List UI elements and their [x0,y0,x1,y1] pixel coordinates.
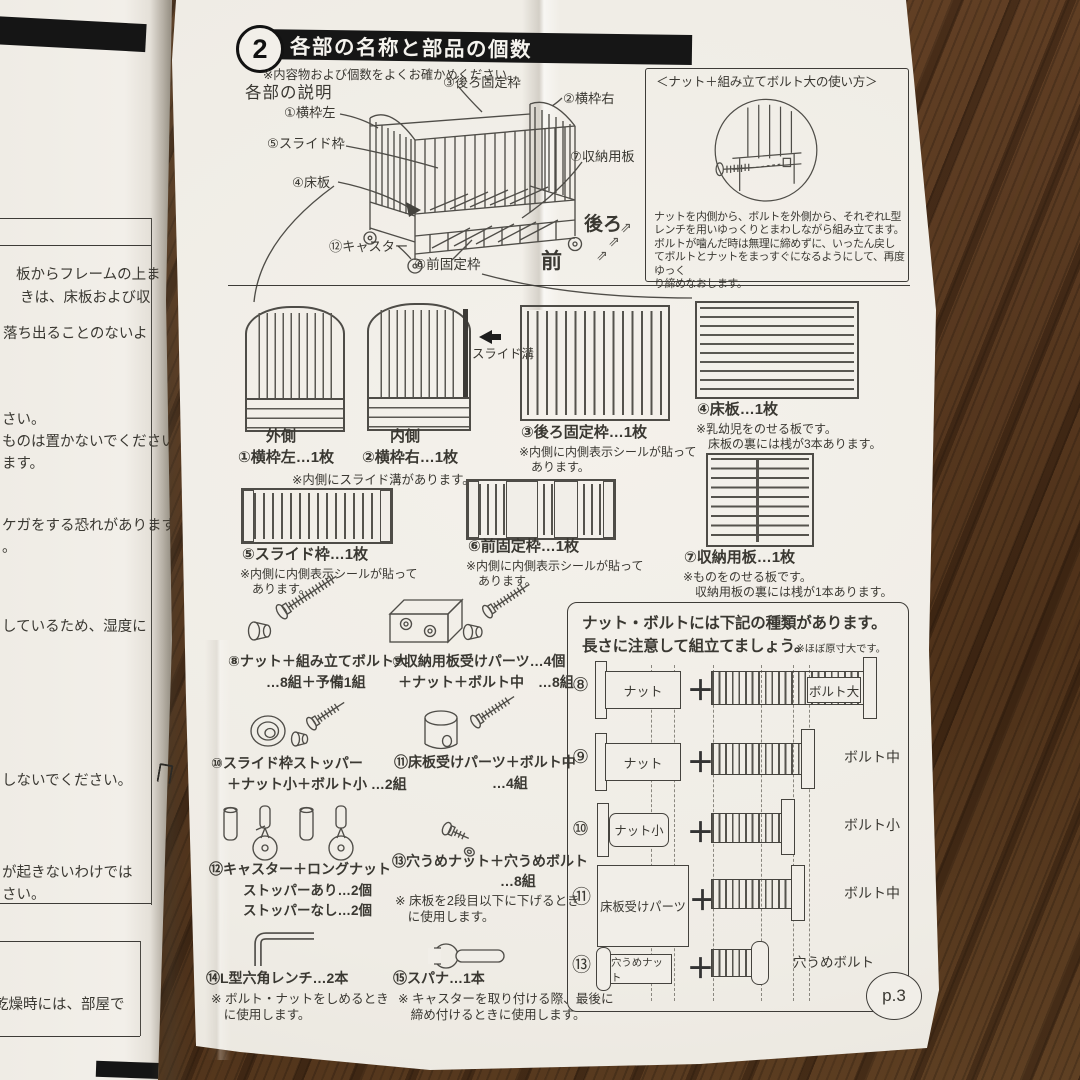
table-hole-cap-nut-drawing: 穴うめナット [610,954,672,984]
small-nut-icon [290,730,310,748]
hardware8-label: ⑧ナット＋組み立てボルト大 [228,653,408,669]
bolt-table-title1: ナット・ボルトには下記の種類があります。 [582,615,886,633]
crib-label-floor-board: ④床板 [292,175,330,190]
hardware11-label: ⑪床板受けパーツ＋ボルト中 [394,754,576,770]
plus-sign: ＋ [687,669,714,708]
bolt-medium-label: ボルト中 [844,885,900,901]
plus-sign: ＋ [687,741,714,780]
table-row13-number: ⑬ [572,955,591,977]
hole-cap-bolt-label: 穴うめボルト [793,955,874,971]
part7-label: ⑦収納用板…1枚 [684,549,795,566]
bolt-size-table: ナット・ボルトには下記の種類があります。 長さに注意して組立てましょう。 ※ほぼ… [567,602,909,1012]
slide-stopper-icon [247,712,289,750]
crib-label-caster: ⑫キャスター [329,239,408,254]
board-support-block-icon [386,594,472,648]
part1-side: 外側 [266,428,296,445]
nut-label: 穴うめナット [611,954,671,984]
part5-label: ⑤スライド枠…1枚 [242,546,368,563]
hardware10-sub: ＋ナット小＋ボルト小 …2組 [227,776,407,792]
staple [156,763,173,784]
bolt-usage-box: ＜ナット＋組み立てボルト大の使い方＞ ナットを内側から、ボルトを外側から、それぞ… [645,68,909,282]
hardware13-sub: …8組 [500,873,536,889]
page-number: p.3 [882,986,906,1006]
hardware13-note: ※ 床板を2段目以下に下げるとき に使用します。 [395,893,580,925]
hardware10-label: ⑩スライド枠ストッパー [211,755,363,771]
bolt-small-label: ボルト小 [844,817,900,833]
part-side-frame-right-drawing [367,303,471,431]
medium-bolt-icon [467,687,523,731]
nut-label: ナット [623,753,662,772]
direction-front-label: 前 [541,250,562,274]
bolt-label: ボルト大 [809,681,859,700]
bolt-usage-illustration [706,93,826,211]
part12-note: ※内側にスライド溝があります。 [292,473,475,487]
section-number: 2 [252,34,267,65]
plus-sign: ＋ [687,947,714,986]
part3-note: ※内側に内側表示シールが貼って あります。 [519,445,696,475]
part-slide-frame-drawing [241,488,393,544]
hardware14-note: ※ ボルト・ナットをしめるとき に使用します。 [211,991,389,1023]
bolt-large-label-box: ボルト大 [807,677,861,703]
part6-note: ※内側に内側表示シールが貼って あります。 [466,559,643,589]
part2-label: ②横枠右…1枚 [362,449,458,466]
bolt-medium-label: ボルト中 [844,749,900,765]
part-floor-board-drawing [695,301,859,399]
support-part-label: 床板受けパーツ [600,897,686,915]
section-title: 各部の名称と部品の個数 [290,29,532,62]
hardware12-sub1: ストッパーあり…2個 [243,883,372,899]
table-support-part-drawing: 床板受けパーツ [597,865,689,947]
crib-label-front-fixed-frame: ⑥前固定枠 [414,257,481,273]
bolt-usage-body: ナットを内側から、ボルトを外側から、それぞれL型 レンチを用いゆっくりとまわしな… [654,211,908,291]
direction-arrow-icon: ⇗ [596,247,608,264]
floor-board-arrowhead [406,202,421,217]
crib-label-side-frame-right: ②横枠右 [563,91,614,106]
main-page-content: 各部の名称と部品の個数 2 ※内容物および個数をよくお確かめください。 各部の説… [0,0,1080,1080]
hardware15-label: ⑮スパナ…1本 [393,970,485,986]
bolt-table-scale-note: ※ほぼ原寸大です。 [796,644,886,656]
hardware9-label: ⑨収納用板受けパーツ…4個 [392,653,565,669]
hardware8-sub: …8組＋予備1組 [266,674,366,690]
page-number-badge: p.3 [866,972,922,1020]
nut-icon [246,618,274,644]
photo-of-instruction-manual: 板からフレームの上ま きは、床板および収 落ち出ることのないよ さい。 ものは置… [0,0,1080,1080]
section-divider [228,285,910,286]
part4-note: ※乳幼児をのせる板です。 床板の裏には桟が3本あります。 [696,422,881,452]
part4-label: ④床板…1枚 [697,401,778,418]
hardware14-label: ⑭L型六角レンチ…2本 [206,970,348,986]
direction-arrow-icon: ⇗ [608,233,620,250]
table-row11-number: ⑪ [572,887,591,909]
crib-label-side-frame-left: ①横枠左 [284,105,335,120]
part7-note: ※ものをのせる板です。 収納用板の裏には桟が1本あります。 [683,570,892,600]
bolt-table-title2: 長さに注意して組立てましょう。 [582,638,809,656]
table-small-nut-drawing: ナット小 [609,813,669,847]
hex-key-icon [248,928,320,970]
part-back-fixed-frame-drawing [520,305,670,421]
caster-and-long-nut-icons [220,806,370,864]
plus-sign: ＋ [687,811,714,850]
hardware12-label: ⑫キャスター＋ロングナット [209,861,391,877]
small-bolt-icon [303,694,352,734]
part6-label: ⑥前固定枠…1枚 [468,538,579,555]
hardware13-label: ⑬穴うめナット＋穴うめボルト [392,853,588,869]
part-storage-board-drawing [706,453,814,547]
bolt-usage-title: ＜ナット＋組み立てボルト大の使い方＞ [656,75,877,89]
part-side-frame-left-drawing [245,306,345,432]
nut-label: ナット [623,681,662,700]
part1-label: ①横枠左…1枚 [238,449,334,466]
nut-label: ナット小 [614,821,663,839]
crib-label-back-fixed-frame: ③後ろ固定枠 [443,75,521,90]
hardware11-sub: …4組 [492,775,528,791]
table-row9-number: ⑨ [572,747,589,769]
hardware12-sub2: ストッパーなし…2個 [243,903,372,919]
table-row10-number: ⑩ [572,819,589,841]
hardware9-sub: ＋ナット＋ボルト中 …8組 [398,674,574,690]
crib-label-storage-board: ⑦収納用板 [570,149,635,164]
slide-groove-arrow-icon [472,330,501,344]
part-front-fixed-frame-drawing [466,479,616,540]
table-row8-number: ⑧ [572,675,589,697]
table-nut-drawing: ナット [605,671,681,709]
part2-side: 内側 [390,428,420,445]
table-nut-drawing: ナット [605,743,681,781]
slide-groove-strip [463,309,468,399]
nut-icon [462,622,484,642]
part3-label: ③後ろ固定枠…1枚 [521,424,647,441]
section-number-badge: 2 [236,25,284,73]
crib-label-slide-frame: ⑤スライド枠 [267,136,345,151]
direction-arrow-icon: ⇗ [620,219,632,236]
section-title-banner: 各部の名称と部品の個数 [254,29,692,65]
floor-support-cylinder-icon [420,708,462,754]
